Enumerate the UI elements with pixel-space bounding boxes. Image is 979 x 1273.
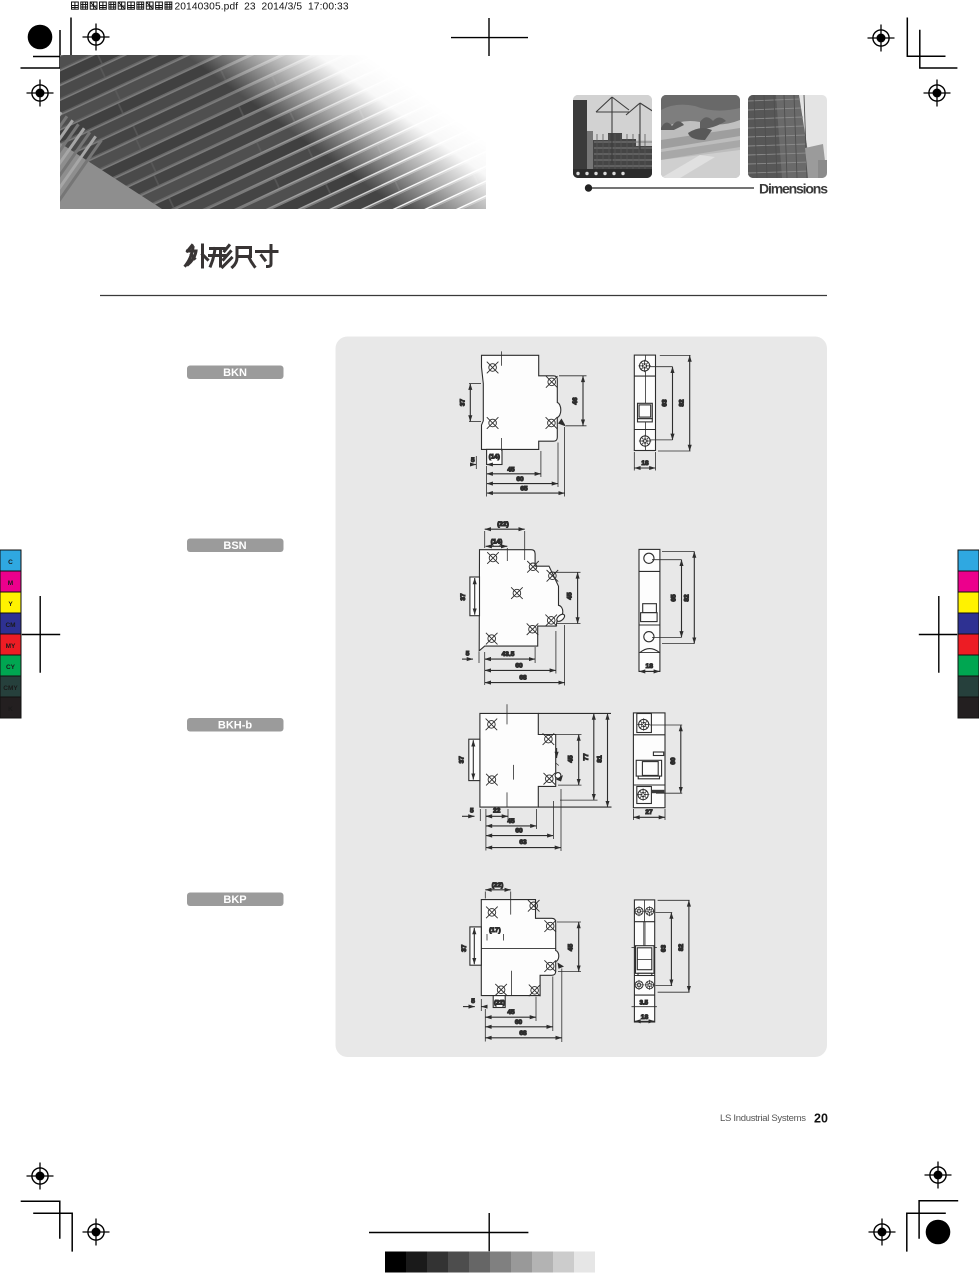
svg-text:46: 46 xyxy=(572,397,579,405)
svg-text:20: 20 xyxy=(814,1112,828,1126)
svg-text:68: 68 xyxy=(519,1030,527,1037)
svg-text:60: 60 xyxy=(515,1019,523,1026)
svg-text:5: 5 xyxy=(471,998,475,1005)
svg-text:82: 82 xyxy=(679,399,686,407)
svg-text:60: 60 xyxy=(515,828,523,835)
svg-text:MY: MY xyxy=(6,643,16,650)
svg-text:82: 82 xyxy=(678,944,685,952)
svg-text:45: 45 xyxy=(507,818,515,825)
svg-text:(14): (14) xyxy=(489,454,500,461)
svg-text:60: 60 xyxy=(670,757,677,765)
svg-text:43.5: 43.5 xyxy=(502,651,515,658)
svg-text:63: 63 xyxy=(662,399,669,407)
svg-text:5: 5 xyxy=(470,808,474,815)
svg-text:CMY: CMY xyxy=(3,685,18,692)
svg-text:(22): (22) xyxy=(497,521,509,528)
svg-text:68: 68 xyxy=(519,675,527,682)
svg-text:(17): (17) xyxy=(489,927,501,934)
svg-text:BKH-b: BKH-b xyxy=(218,720,252,732)
svg-text:63: 63 xyxy=(519,839,527,846)
svg-text:(14): (14) xyxy=(491,539,503,546)
svg-text:BKN: BKN xyxy=(223,367,247,379)
svg-text:45: 45 xyxy=(568,755,575,763)
svg-text:65: 65 xyxy=(520,486,528,493)
svg-text:45: 45 xyxy=(567,592,574,600)
svg-text:18: 18 xyxy=(641,460,649,467)
svg-text:Dimensions: Dimensions xyxy=(759,181,828,197)
svg-text:63: 63 xyxy=(660,945,667,953)
svg-text:BKP: BKP xyxy=(223,894,246,906)
svg-text:3.5: 3.5 xyxy=(640,1001,649,1007)
svg-text:37: 37 xyxy=(461,944,468,952)
svg-text:K: K xyxy=(8,706,13,713)
svg-text:81: 81 xyxy=(597,755,604,763)
svg-text:22: 22 xyxy=(493,808,501,815)
svg-text:C: C xyxy=(8,559,13,566)
svg-text:CY: CY xyxy=(6,664,16,671)
svg-text:18: 18 xyxy=(646,663,654,670)
svg-text:LS Industrial Systems: LS Industrial Systems xyxy=(720,1113,806,1124)
svg-text:20140305.pdf 23 2014/3/5 17: 20140305.pdf 23 2014/3/5 17:00:33 xyxy=(175,2,349,13)
svg-text:18: 18 xyxy=(641,1014,649,1021)
svg-text:45: 45 xyxy=(568,944,575,952)
svg-text:37: 37 xyxy=(460,593,467,601)
svg-text:5: 5 xyxy=(466,650,470,657)
svg-text:45: 45 xyxy=(507,1009,515,1016)
svg-text:45: 45 xyxy=(507,466,515,473)
svg-text:(22): (22) xyxy=(494,1001,505,1007)
svg-text:82: 82 xyxy=(683,594,690,602)
svg-text:37: 37 xyxy=(459,756,466,764)
svg-text:37: 37 xyxy=(459,399,466,407)
svg-text:BSN: BSN xyxy=(223,540,246,552)
svg-text:27: 27 xyxy=(645,809,653,816)
svg-text:65: 65 xyxy=(671,594,678,602)
svg-text:M: M xyxy=(8,580,13,587)
svg-text:CM: CM xyxy=(5,622,15,629)
svg-text:77: 77 xyxy=(583,753,590,761)
svg-text:5: 5 xyxy=(471,457,475,464)
svg-text:60: 60 xyxy=(515,662,523,669)
svg-text:Y: Y xyxy=(8,601,13,608)
svg-text:(22): (22) xyxy=(492,882,504,889)
svg-text:60: 60 xyxy=(516,476,524,483)
